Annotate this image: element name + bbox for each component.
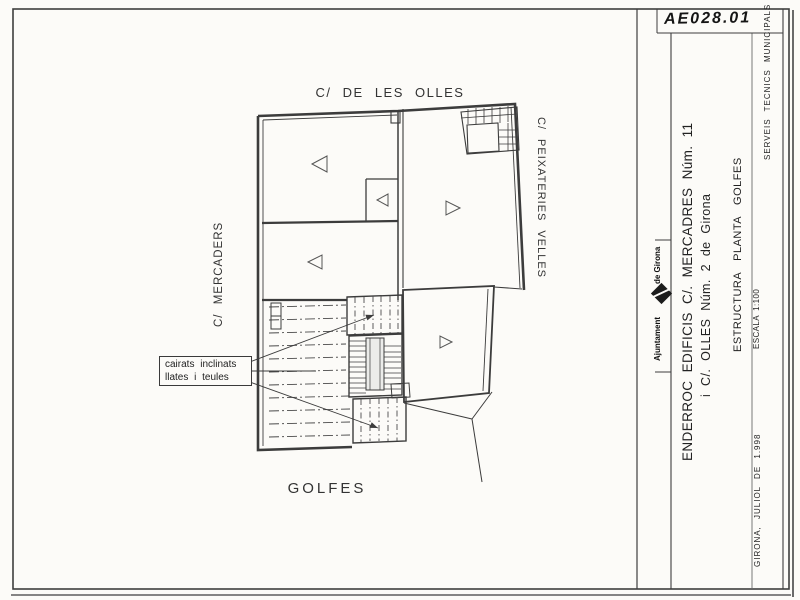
title-line2: i C/. OLLES Núm. 2 de Girona — [699, 138, 718, 452]
date-place-label: GIRONA, JULIOL DE 1.998 — [753, 414, 767, 586]
drawing-sheet: C/ DE LES OLLES C/ MERCADERS C/ PEIXATER… — [0, 0, 800, 600]
floor-plan — [247, 104, 524, 482]
logo-text-top: de Girona — [653, 246, 668, 284]
subtitle-label: ESTRUCTURA PLANTA GOLFES — [732, 188, 749, 352]
annotation-box: cairats inclinatsllates i teules — [159, 356, 252, 386]
street-label-right: C/ PEIXATERIES VELLES — [532, 112, 547, 284]
title-line1: ENDERROC EDIFICIS C/. MERCADRES Núm. 11 — [680, 106, 700, 478]
girona-logo-icon — [651, 283, 672, 304]
exterior-wall-left-bottom — [258, 116, 352, 450]
stair-detail-top-right — [461, 106, 519, 154]
interior-walls — [262, 109, 522, 300]
area-label-golfes: GOLFES — [267, 480, 387, 497]
slope-triangle-left-2 — [377, 194, 388, 206]
annotation-line1: cairats inclinats — [165, 359, 236, 370]
hatched-band-upper — [347, 295, 402, 335]
slope-triangles — [308, 156, 460, 348]
hatched-band-lower — [353, 397, 406, 443]
slope-triangle-left-1 — [312, 156, 327, 172]
drawing-code: AE028.01 — [664, 9, 759, 29]
staircase — [349, 334, 410, 398]
annotation-line2: llates i teules — [165, 372, 229, 383]
street-label-left: C/ MERCADERS — [213, 216, 228, 332]
slope-triangle-right-2 — [440, 336, 452, 348]
boundary-lines — [404, 392, 492, 482]
exterior-wall-top-right — [258, 104, 524, 290]
slope-triangle-left-3 — [308, 255, 322, 269]
scale-label: ESCALA 1:100 — [752, 284, 766, 354]
slope-triangle-right-1 — [446, 201, 460, 215]
street-label-top: C/ DE LES OLLES — [290, 85, 490, 100]
department-label: SERVEIS TECNICS MUNICIPALS — [763, 24, 777, 160]
logo-text-bottom: Ajuntament — [653, 310, 668, 368]
